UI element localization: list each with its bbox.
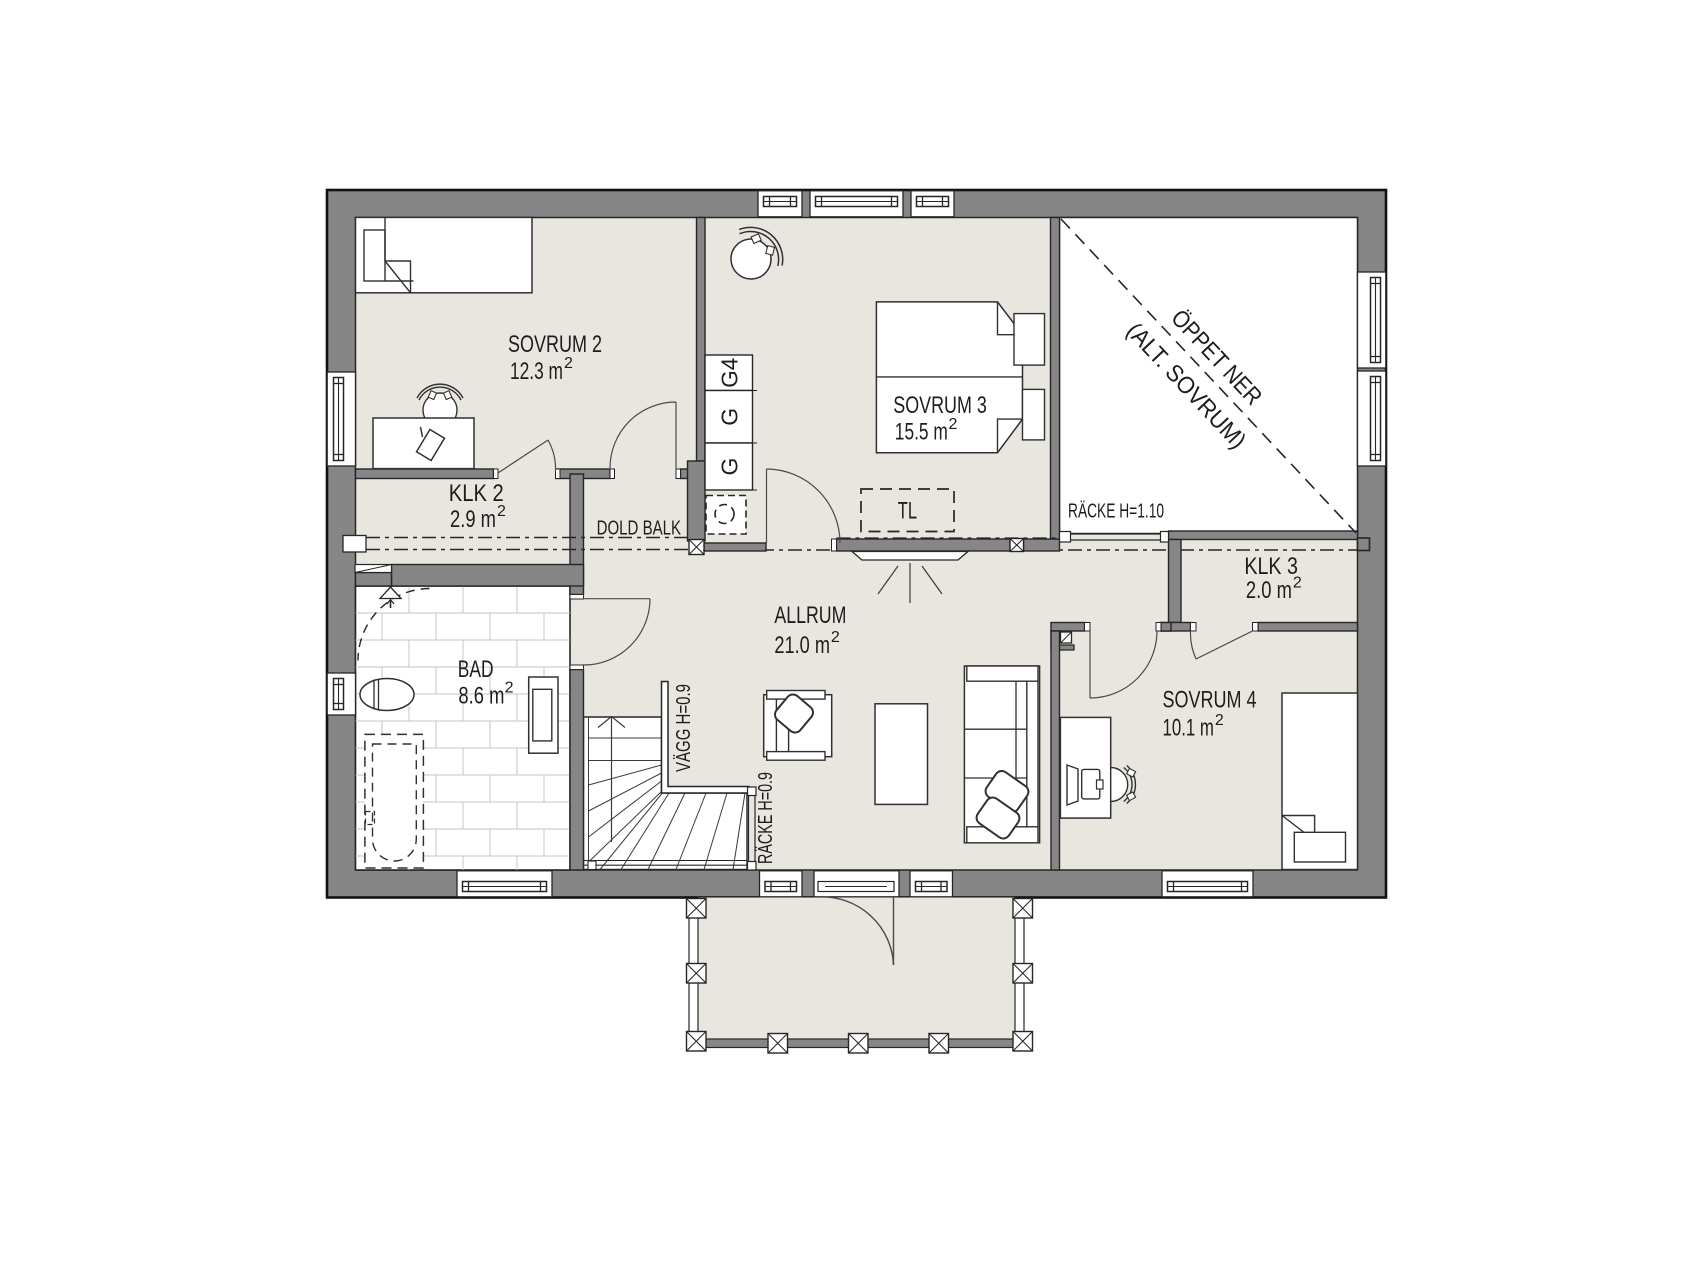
svg-text:2: 2 [497, 503, 506, 520]
svg-text:15.5 m: 15.5 m [895, 419, 948, 446]
svg-text:BAD: BAD [458, 656, 494, 683]
svg-text:G: G [717, 408, 743, 426]
svg-text:2: 2 [1215, 712, 1224, 729]
svg-text:SOVRUM 2: SOVRUM 2 [508, 331, 602, 358]
svg-text:2: 2 [1293, 575, 1302, 592]
svg-text:8.6 m: 8.6 m [458, 683, 504, 710]
svg-text:DOLD BALK: DOLD BALK [597, 518, 682, 540]
svg-text:21.0 m: 21.0 m [774, 632, 830, 659]
svg-text:2.9 m: 2.9 m [450, 506, 496, 533]
svg-text:SOVRUM 4: SOVRUM 4 [1163, 687, 1257, 714]
svg-text:KLK 3: KLK 3 [1244, 553, 1298, 580]
svg-text:10.1 m: 10.1 m [1163, 715, 1214, 742]
svg-text:2: 2 [564, 355, 573, 372]
svg-text:ALLRUM: ALLRUM [774, 602, 846, 629]
svg-text:2: 2 [505, 680, 514, 697]
svg-text:12.3 m: 12.3 m [510, 358, 563, 385]
svg-text:SOVRUM 3: SOVRUM 3 [893, 392, 987, 419]
svg-text:G4: G4 [717, 358, 743, 388]
svg-text:G: G [717, 458, 743, 476]
svg-text:TL: TL [898, 498, 917, 525]
svg-text:2.0 m: 2.0 m [1246, 577, 1292, 604]
svg-text:VÄGG H=0.9: VÄGG H=0.9 [673, 684, 695, 772]
svg-text:RÄCKE H=0.9: RÄCKE H=0.9 [755, 772, 777, 864]
svg-text:2: 2 [831, 629, 840, 646]
svg-text:RÄCKE H=1.10: RÄCKE H=1.10 [1068, 501, 1164, 523]
svg-text:2: 2 [949, 416, 958, 433]
svg-text:KLK 2: KLK 2 [449, 480, 504, 507]
